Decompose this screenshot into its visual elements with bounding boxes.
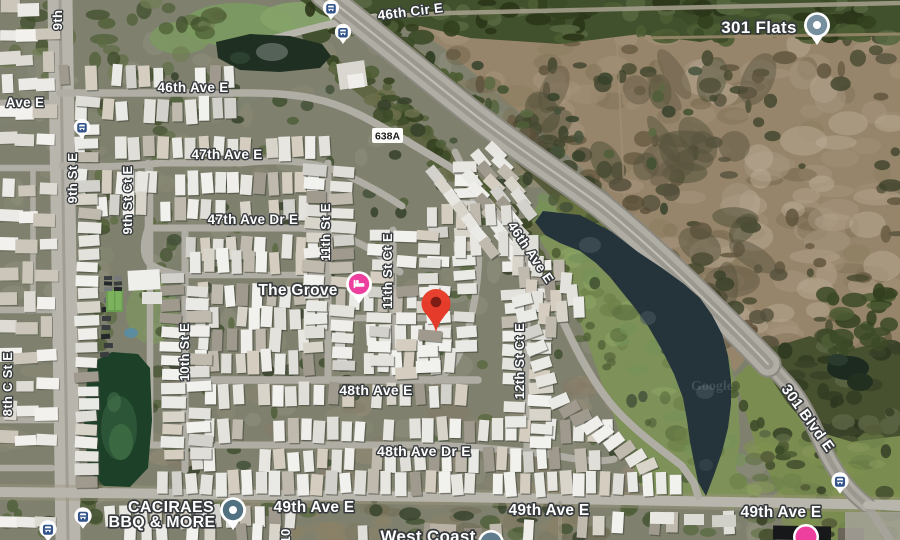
- svg-text:638A: 638A: [375, 131, 401, 143]
- svg-text:11th St Ct E: 11th St Ct E: [380, 233, 395, 309]
- svg-text:8th C St E: 8th C St E: [0, 352, 15, 416]
- svg-text:46th Ave E: 46th Ave E: [157, 80, 228, 95]
- svg-text:9th: 9th: [50, 10, 65, 30]
- svg-text:47th Ave E: 47th Ave E: [191, 147, 262, 162]
- svg-text:47th Ave Dr E: 47th Ave Dr E: [208, 212, 299, 227]
- svg-text:12th St Ct E: 12th St Ct E: [512, 323, 527, 400]
- svg-text:9th St E: 9th St E: [65, 153, 80, 204]
- svg-text:10: 10: [278, 528, 293, 540]
- svg-text:Google: Google: [691, 379, 733, 394]
- svg-text:BBQ & MORE: BBQ & MORE: [109, 514, 216, 531]
- svg-text:11th St E: 11th St E: [318, 203, 333, 261]
- svg-text:The Grove: The Grove: [258, 282, 337, 299]
- svg-text:48th Ave E: 48th Ave E: [339, 382, 413, 398]
- svg-text:49th Ave E: 49th Ave E: [508, 502, 589, 519]
- svg-text:Ave E: Ave E: [6, 95, 45, 110]
- svg-text:10th St E: 10th St E: [177, 323, 192, 381]
- svg-text:9th St Ct E: 9th St Ct E: [120, 165, 135, 234]
- svg-text:49th Ave E: 49th Ave E: [273, 499, 354, 516]
- svg-text:49th Ave E: 49th Ave E: [740, 504, 821, 521]
- svg-text:West Coast: West Coast: [380, 527, 475, 540]
- svg-text:48th Ave Dr E: 48th Ave Dr E: [377, 443, 471, 459]
- svg-text:301 Flats: 301 Flats: [721, 18, 796, 37]
